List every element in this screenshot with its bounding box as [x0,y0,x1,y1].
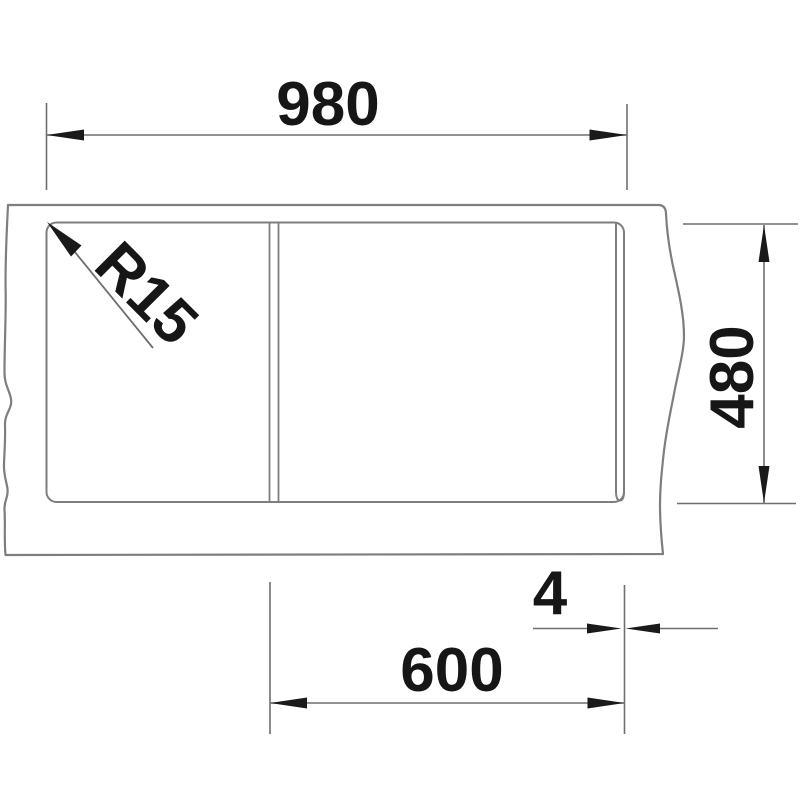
dim-600-label: 600 [400,640,503,702]
dim-480-arrow-bottom [759,466,770,503]
dim-980-label: 980 [276,74,379,136]
dim-480-label: 480 [702,325,764,428]
dim-980-arrow-left [47,130,85,141]
dim-4-arrow-right [626,624,661,634]
dim-980-arrow-right [590,130,628,141]
dim-600-arrow-right [588,698,625,709]
dim-480-arrow-top [759,225,770,262]
dim-4-arrow-left [587,624,622,634]
dim-600-arrow-left [270,698,307,709]
dimension-drawing: 980 480 600 4 R15 [0,0,800,800]
dim-4-label: 4 [533,563,567,625]
